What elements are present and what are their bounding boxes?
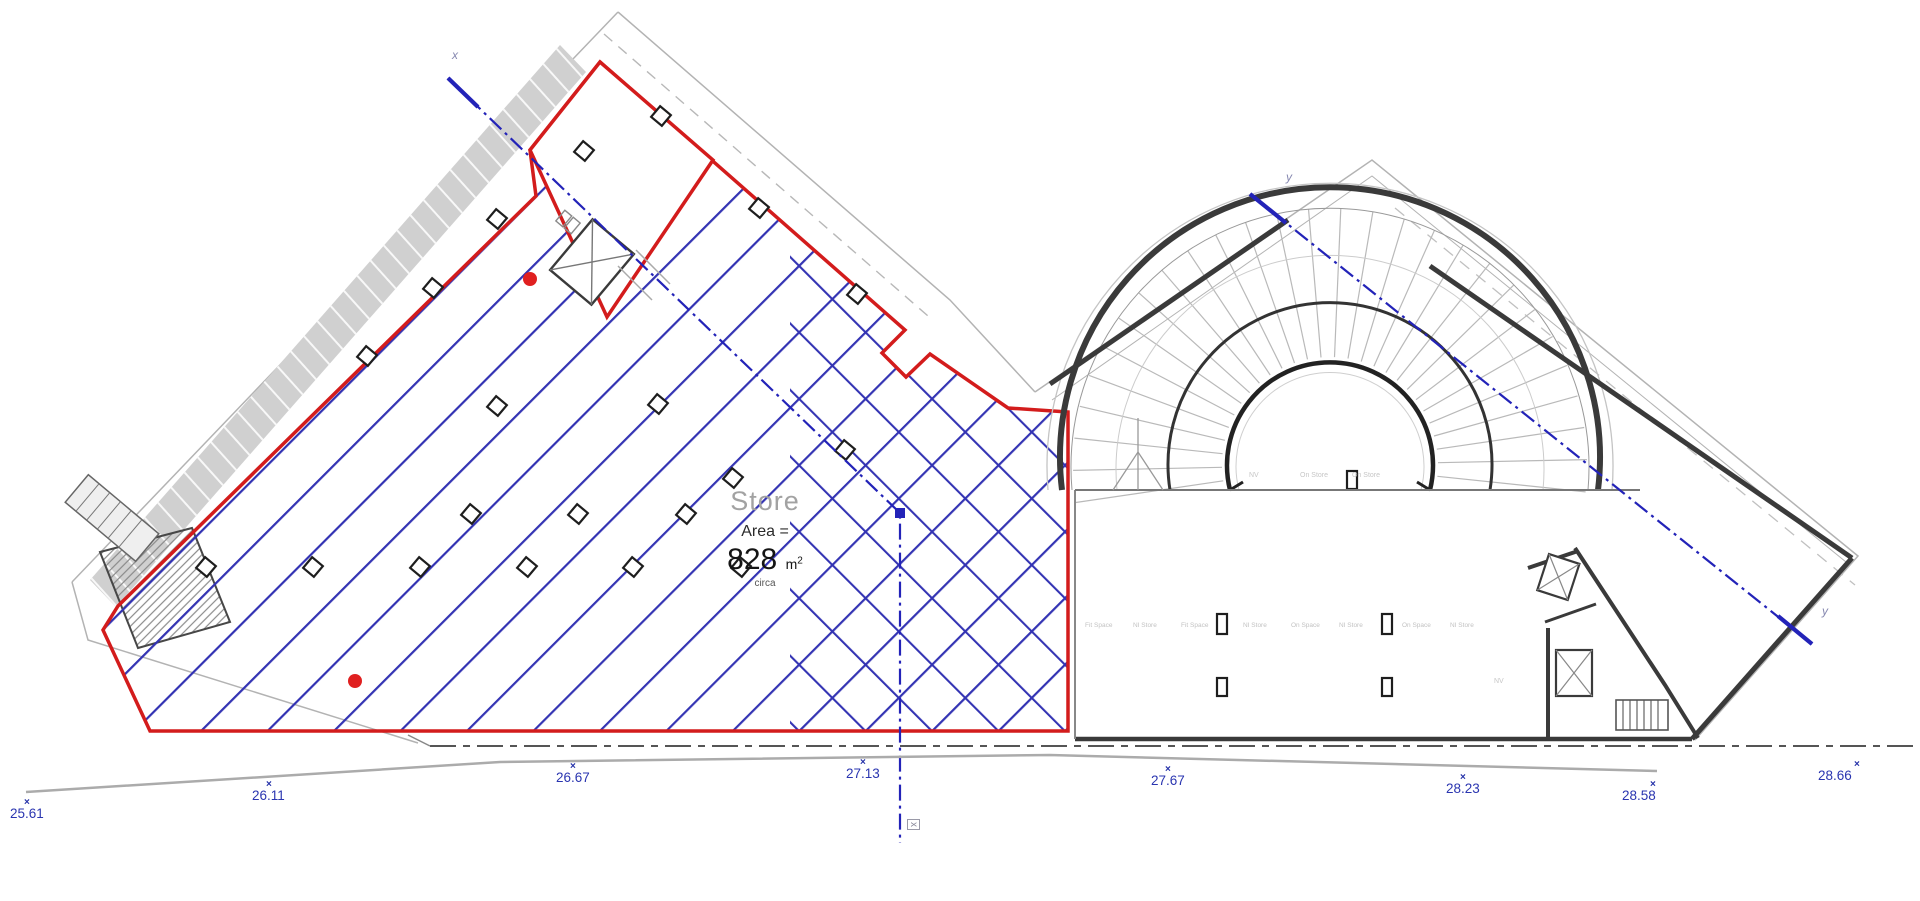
faint-label: On Space xyxy=(1291,622,1320,629)
store-label-block: Store Area = 828 m2 circa xyxy=(690,486,840,589)
spot-level: ×26.11 xyxy=(252,782,285,803)
area-label: Area = xyxy=(690,523,840,541)
floor-plan-drawing xyxy=(0,0,1920,901)
spot-level: ×27.13 xyxy=(846,760,880,781)
spot-level: ×28.66 xyxy=(1818,762,1860,783)
elevator-icon-right xyxy=(1556,650,1592,696)
level-marker-icon: × xyxy=(1854,762,1860,768)
area-value-line: 828 m2 xyxy=(690,543,840,578)
faint-label: NI Store xyxy=(1243,622,1267,629)
survey-dot-2 xyxy=(348,674,362,688)
section-label-y-start: y xyxy=(1286,170,1292,184)
faint-label: Fit Space xyxy=(1085,622,1112,629)
faint-label: NI Store xyxy=(1133,622,1157,629)
section-label-x-end: x xyxy=(907,819,920,830)
floor-plan-page: Store Area = 828 m2 circa ×25.61 ×26.11 … xyxy=(0,0,1920,901)
setback-dashed-line-right xyxy=(1395,208,1855,585)
spot-level: ×28.23 xyxy=(1446,775,1480,796)
spot-level: ×27.67 xyxy=(1151,767,1185,788)
section-label-x-start: x xyxy=(452,48,458,62)
spot-level: ×28.58 xyxy=(1622,782,1656,803)
area-note: circa xyxy=(690,578,840,590)
curved-stair xyxy=(1047,183,1613,502)
faint-label: NV xyxy=(1494,678,1504,685)
door-swing xyxy=(1113,418,1163,490)
section-label-y-end: y xyxy=(1822,604,1828,618)
faint-label: On Store xyxy=(1352,472,1380,479)
right-wing-walls xyxy=(1050,220,1852,739)
section-line-y xyxy=(1250,194,1812,644)
room-name: Store xyxy=(690,486,840,517)
faint-label: On Store xyxy=(1300,472,1328,479)
spot-level: ×26.67 xyxy=(556,764,590,785)
faint-label: NI Store xyxy=(1450,622,1474,629)
faint-label: NI Store xyxy=(1339,622,1363,629)
stair-icon-right xyxy=(1616,700,1668,730)
spot-level: ×25.61 xyxy=(10,800,44,821)
faint-label: On Space xyxy=(1402,622,1431,629)
faint-label: NV xyxy=(1249,472,1259,479)
survey-dot-1 xyxy=(523,272,537,286)
faint-label: Fit Space xyxy=(1181,622,1208,629)
